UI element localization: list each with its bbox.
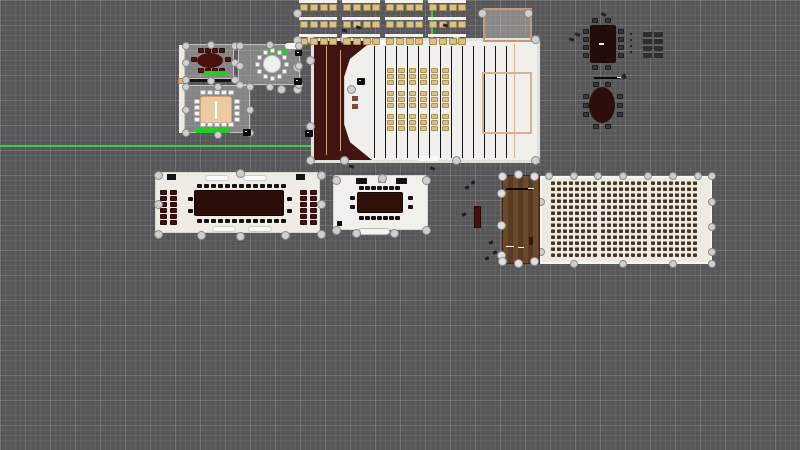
chair[interactable] bbox=[310, 220, 317, 225]
selection-handle[interactable] bbox=[694, 172, 702, 180]
chair[interactable] bbox=[207, 90, 213, 95]
chair[interactable] bbox=[675, 181, 679, 185]
chair[interactable] bbox=[587, 187, 591, 191]
chair[interactable] bbox=[398, 103, 405, 108]
chair[interactable] bbox=[458, 21, 466, 28]
chair[interactable] bbox=[601, 199, 605, 203]
chair[interactable] bbox=[170, 196, 177, 201]
chair[interactable] bbox=[188, 197, 193, 201]
chair[interactable] bbox=[569, 187, 573, 191]
chair[interactable] bbox=[593, 241, 597, 245]
chair[interactable] bbox=[569, 241, 573, 245]
chair[interactable] bbox=[281, 184, 286, 188]
chair[interactable] bbox=[557, 247, 561, 251]
selection-handle[interactable] bbox=[514, 259, 523, 268]
chair[interactable] bbox=[569, 247, 573, 251]
chair[interactable] bbox=[693, 181, 697, 185]
chair[interactable] bbox=[613, 253, 617, 257]
chair[interactable] bbox=[651, 199, 655, 203]
credenza[interactable] bbox=[248, 226, 272, 232]
chair[interactable] bbox=[593, 193, 597, 197]
chair[interactable] bbox=[343, 4, 351, 11]
chair[interactable] bbox=[651, 187, 655, 191]
chair[interactable] bbox=[663, 199, 667, 203]
chair[interactable] bbox=[601, 235, 605, 239]
selection-handle[interactable] bbox=[317, 200, 326, 209]
chair[interactable] bbox=[637, 241, 641, 245]
chair[interactable] bbox=[170, 220, 177, 225]
chair[interactable] bbox=[429, 4, 437, 11]
chair[interactable] bbox=[442, 91, 449, 96]
chair[interactable] bbox=[625, 247, 629, 251]
chair[interactable] bbox=[232, 219, 237, 223]
chair[interactable] bbox=[654, 45, 663, 51]
chair[interactable] bbox=[409, 126, 416, 131]
chair[interactable] bbox=[693, 235, 697, 239]
chair[interactable] bbox=[605, 18, 611, 23]
chair[interactable] bbox=[643, 181, 647, 185]
selection-handle[interactable] bbox=[236, 42, 244, 50]
chair[interactable] bbox=[675, 247, 679, 251]
chair[interactable] bbox=[287, 197, 292, 201]
selection-handle[interactable] bbox=[708, 223, 716, 231]
chair[interactable] bbox=[593, 181, 597, 185]
chair[interactable] bbox=[625, 235, 629, 239]
chair[interactable] bbox=[643, 205, 647, 209]
chair[interactable] bbox=[693, 205, 697, 209]
chair[interactable] bbox=[263, 50, 268, 55]
chair[interactable] bbox=[687, 247, 691, 251]
chair[interactable] bbox=[365, 216, 370, 220]
chair[interactable] bbox=[409, 68, 416, 73]
chair[interactable] bbox=[420, 91, 427, 96]
chair[interactable] bbox=[246, 219, 251, 223]
chair[interactable] bbox=[329, 38, 337, 45]
credenza[interactable] bbox=[243, 175, 267, 181]
selection-handle[interactable] bbox=[182, 106, 190, 114]
selection-handle[interactable] bbox=[266, 83, 274, 91]
chair[interactable] bbox=[631, 223, 635, 227]
chair[interactable] bbox=[431, 103, 438, 108]
chair[interactable] bbox=[687, 229, 691, 233]
chair[interactable] bbox=[625, 253, 629, 257]
chair[interactable] bbox=[583, 103, 589, 108]
chair[interactable] bbox=[625, 205, 629, 209]
chair[interactable] bbox=[429, 21, 437, 28]
selection-handle[interactable] bbox=[478, 9, 487, 18]
chair[interactable] bbox=[191, 57, 197, 62]
chair[interactable] bbox=[693, 229, 697, 233]
selection-handle[interactable] bbox=[332, 226, 341, 235]
chair[interactable] bbox=[372, 4, 380, 11]
chair[interactable] bbox=[204, 219, 209, 223]
chair[interactable] bbox=[613, 211, 617, 215]
chair[interactable] bbox=[281, 219, 286, 223]
chair[interactable] bbox=[575, 217, 579, 221]
chair[interactable] bbox=[415, 4, 423, 11]
selection-handle[interactable] bbox=[154, 200, 163, 209]
chair[interactable] bbox=[687, 223, 691, 227]
chair[interactable] bbox=[257, 69, 262, 74]
chair[interactable] bbox=[669, 187, 673, 191]
chair[interactable] bbox=[551, 241, 555, 245]
chair[interactable] bbox=[575, 187, 579, 191]
chair[interactable] bbox=[551, 217, 555, 221]
chair[interactable] bbox=[625, 229, 629, 233]
chair[interactable] bbox=[551, 253, 555, 257]
chair[interactable] bbox=[320, 38, 328, 45]
chair[interactable] bbox=[569, 235, 573, 239]
chair[interactable] bbox=[637, 247, 641, 251]
chair[interactable] bbox=[651, 217, 655, 221]
chair[interactable] bbox=[631, 199, 635, 203]
chair[interactable] bbox=[234, 117, 240, 122]
chair[interactable] bbox=[569, 181, 573, 185]
chair[interactable] bbox=[681, 229, 685, 233]
chair[interactable] bbox=[310, 38, 318, 45]
selection-handle[interactable] bbox=[498, 172, 507, 181]
chair[interactable] bbox=[675, 187, 679, 191]
chair[interactable] bbox=[607, 229, 611, 233]
chair[interactable] bbox=[221, 90, 227, 95]
chair[interactable] bbox=[593, 124, 599, 129]
chair[interactable] bbox=[681, 187, 685, 191]
chair[interactable] bbox=[557, 181, 561, 185]
chair[interactable] bbox=[575, 205, 579, 209]
chair[interactable] bbox=[657, 223, 661, 227]
chair[interactable] bbox=[687, 187, 691, 191]
chair[interactable] bbox=[651, 181, 655, 185]
desk[interactable] bbox=[299, 17, 337, 20]
chair[interactable] bbox=[593, 247, 597, 251]
chair[interactable] bbox=[657, 253, 661, 257]
chair[interactable] bbox=[687, 199, 691, 203]
chair[interactable] bbox=[637, 193, 641, 197]
chair[interactable] bbox=[581, 181, 585, 185]
desk[interactable] bbox=[428, 17, 466, 20]
chair[interactable] bbox=[643, 187, 647, 191]
chair[interactable] bbox=[170, 208, 177, 213]
chair[interactable] bbox=[228, 122, 234, 127]
chair[interactable] bbox=[442, 120, 449, 125]
chair[interactable] bbox=[592, 18, 598, 23]
chair[interactable] bbox=[449, 38, 457, 45]
chair[interactable] bbox=[669, 181, 673, 185]
chair[interactable] bbox=[188, 209, 193, 213]
chair[interactable] bbox=[350, 196, 355, 200]
chair[interactable] bbox=[160, 208, 167, 213]
chair[interactable] bbox=[575, 193, 579, 197]
chair[interactable] bbox=[643, 235, 647, 239]
chair[interactable] bbox=[377, 216, 382, 220]
chair[interactable] bbox=[398, 120, 405, 125]
chair[interactable] bbox=[386, 38, 394, 45]
chair[interactable] bbox=[575, 253, 579, 257]
chair[interactable] bbox=[693, 247, 697, 251]
chair[interactable] bbox=[637, 217, 641, 221]
chair[interactable] bbox=[398, 114, 405, 119]
chair[interactable] bbox=[619, 205, 623, 209]
chair[interactable] bbox=[563, 217, 567, 221]
chair[interactable] bbox=[557, 223, 561, 227]
chair[interactable] bbox=[601, 253, 605, 257]
chair[interactable] bbox=[442, 114, 449, 119]
chair[interactable] bbox=[228, 90, 234, 95]
chair[interactable] bbox=[557, 187, 561, 191]
chair[interactable] bbox=[619, 217, 623, 221]
chair[interactable] bbox=[625, 211, 629, 215]
chair[interactable] bbox=[631, 229, 635, 233]
desk[interactable] bbox=[342, 17, 380, 20]
chair[interactable] bbox=[607, 181, 611, 185]
chair[interactable] bbox=[274, 184, 279, 188]
chair[interactable] bbox=[406, 4, 414, 11]
chair[interactable] bbox=[625, 223, 629, 227]
chair[interactable] bbox=[563, 205, 567, 209]
selection-handle[interactable] bbox=[281, 231, 290, 240]
selection-handle[interactable] bbox=[498, 257, 507, 266]
chair[interactable] bbox=[631, 217, 635, 221]
chair[interactable] bbox=[631, 235, 635, 239]
chair[interactable] bbox=[587, 193, 591, 197]
chair[interactable] bbox=[310, 21, 318, 28]
chair[interactable] bbox=[569, 229, 573, 233]
selection-handle[interactable] bbox=[154, 171, 163, 180]
chair[interactable] bbox=[675, 253, 679, 257]
chair[interactable] bbox=[631, 181, 635, 185]
chair[interactable] bbox=[406, 21, 414, 28]
chair[interactable] bbox=[651, 247, 655, 251]
chair[interactable] bbox=[170, 190, 177, 195]
selection-handle[interactable] bbox=[277, 85, 286, 94]
selection-handle[interactable] bbox=[390, 229, 399, 238]
selection-handle[interactable] bbox=[182, 59, 190, 67]
chair[interactable] bbox=[569, 205, 573, 209]
selection-handle[interactable] bbox=[352, 229, 361, 238]
chair[interactable] bbox=[439, 4, 447, 11]
selection-handle[interactable] bbox=[531, 156, 540, 165]
chair[interactable] bbox=[429, 38, 437, 45]
selection-handle[interactable] bbox=[236, 62, 244, 70]
selection-handle[interactable] bbox=[182, 83, 190, 91]
chair[interactable] bbox=[593, 253, 597, 257]
chair[interactable] bbox=[575, 181, 579, 185]
chair[interactable] bbox=[581, 187, 585, 191]
chair[interactable] bbox=[663, 253, 667, 257]
chair[interactable] bbox=[581, 223, 585, 227]
chair[interactable] bbox=[619, 229, 623, 233]
chair[interactable] bbox=[160, 214, 167, 219]
chair[interactable] bbox=[613, 181, 617, 185]
chair[interactable] bbox=[583, 29, 589, 34]
chair[interactable] bbox=[681, 211, 685, 215]
selection-handle[interactable] bbox=[340, 156, 349, 165]
chair[interactable] bbox=[613, 229, 617, 233]
chair[interactable] bbox=[663, 235, 667, 239]
chair[interactable] bbox=[637, 229, 641, 233]
chair[interactable] bbox=[687, 241, 691, 245]
chair[interactable] bbox=[669, 253, 673, 257]
chair[interactable] bbox=[681, 223, 685, 227]
chair[interactable] bbox=[575, 211, 579, 215]
chair[interactable] bbox=[657, 235, 661, 239]
chair[interactable] bbox=[387, 126, 394, 131]
chair[interactable] bbox=[320, 21, 328, 28]
chair[interactable] bbox=[663, 187, 667, 191]
chair[interactable] bbox=[310, 196, 317, 201]
chair[interactable] bbox=[687, 253, 691, 257]
desk[interactable] bbox=[428, 34, 466, 37]
chair[interactable] bbox=[442, 103, 449, 108]
chair[interactable] bbox=[194, 105, 200, 110]
chair[interactable] bbox=[246, 184, 251, 188]
chair[interactable] bbox=[619, 193, 623, 197]
chair[interactable] bbox=[619, 235, 623, 239]
chair[interactable] bbox=[200, 90, 206, 95]
chair[interactable] bbox=[398, 91, 405, 96]
chair[interactable] bbox=[613, 199, 617, 203]
chair[interactable] bbox=[587, 253, 591, 257]
selection-handle[interactable] bbox=[422, 226, 431, 235]
chair[interactable] bbox=[601, 181, 605, 185]
chair[interactable] bbox=[551, 223, 555, 227]
chair[interactable] bbox=[563, 187, 567, 191]
chair[interactable] bbox=[593, 82, 599, 87]
chair[interactable] bbox=[637, 181, 641, 185]
chair[interactable] bbox=[409, 103, 416, 108]
selection-handle[interactable] bbox=[246, 83, 254, 91]
chair[interactable] bbox=[274, 219, 279, 223]
chair[interactable] bbox=[234, 111, 240, 116]
conference-table[interactable] bbox=[194, 190, 284, 216]
conference-table[interactable] bbox=[357, 192, 403, 213]
selection-handle[interactable] bbox=[531, 35, 540, 44]
chair[interactable] bbox=[282, 55, 287, 60]
chair[interactable] bbox=[619, 187, 623, 191]
chair[interactable] bbox=[643, 211, 647, 215]
chair[interactable] bbox=[267, 184, 272, 188]
chair[interactable] bbox=[657, 229, 661, 233]
chair[interactable] bbox=[669, 229, 673, 233]
selection-handle[interactable] bbox=[530, 257, 539, 266]
chair[interactable] bbox=[587, 223, 591, 227]
chair[interactable] bbox=[431, 91, 438, 96]
chair[interactable] bbox=[581, 241, 585, 245]
selection-handle[interactable] bbox=[347, 85, 356, 94]
chair[interactable] bbox=[613, 223, 617, 227]
chair[interactable] bbox=[569, 193, 573, 197]
selection-handle[interactable] bbox=[306, 56, 315, 65]
chair[interactable] bbox=[613, 193, 617, 197]
chair[interactable] bbox=[657, 247, 661, 251]
chair[interactable] bbox=[593, 211, 597, 215]
chair[interactable] bbox=[431, 126, 438, 131]
chair[interactable] bbox=[657, 199, 661, 203]
table-top[interactable] bbox=[197, 53, 223, 68]
chair[interactable] bbox=[663, 181, 667, 185]
chair[interactable] bbox=[310, 202, 317, 207]
chair[interactable] bbox=[643, 193, 647, 197]
desk[interactable] bbox=[385, 17, 423, 20]
chair[interactable] bbox=[282, 69, 287, 74]
chair[interactable] bbox=[587, 181, 591, 185]
chair[interactable] bbox=[225, 184, 230, 188]
chair[interactable] bbox=[386, 21, 394, 28]
chair[interactable] bbox=[557, 241, 561, 245]
chair[interactable] bbox=[631, 211, 635, 215]
design-canvas[interactable] bbox=[0, 0, 800, 450]
chair[interactable] bbox=[619, 241, 623, 245]
chair[interactable] bbox=[408, 196, 413, 200]
chair[interactable] bbox=[675, 199, 679, 203]
selection-handle[interactable] bbox=[530, 172, 539, 181]
chair[interactable] bbox=[631, 253, 635, 257]
selection-handle[interactable] bbox=[452, 156, 461, 165]
chair[interactable] bbox=[160, 220, 167, 225]
chair[interactable] bbox=[383, 216, 388, 220]
chair[interactable] bbox=[320, 4, 328, 11]
chair[interactable] bbox=[625, 199, 629, 203]
chair[interactable] bbox=[406, 38, 414, 45]
chair[interactable] bbox=[194, 111, 200, 116]
chair[interactable] bbox=[631, 187, 635, 191]
chair[interactable] bbox=[607, 253, 611, 257]
chair[interactable] bbox=[409, 97, 416, 102]
chair[interactable] bbox=[563, 211, 567, 215]
chair[interactable] bbox=[663, 193, 667, 197]
chair[interactable] bbox=[651, 211, 655, 215]
selection-handle[interactable] bbox=[708, 198, 716, 206]
chair[interactable] bbox=[643, 223, 647, 227]
selection-handle[interactable] bbox=[570, 260, 578, 268]
chair[interactable] bbox=[353, 4, 361, 11]
selection-handle[interactable] bbox=[669, 260, 677, 268]
chair[interactable] bbox=[663, 223, 667, 227]
chair[interactable] bbox=[651, 253, 655, 257]
chair[interactable] bbox=[386, 4, 394, 11]
chair[interactable] bbox=[569, 211, 573, 215]
chair[interactable] bbox=[601, 193, 605, 197]
chair[interactable] bbox=[675, 229, 679, 233]
chair[interactable] bbox=[607, 199, 611, 203]
chair[interactable] bbox=[619, 223, 623, 227]
chair[interactable] bbox=[389, 216, 394, 220]
selection-handle[interactable] bbox=[197, 231, 206, 240]
chair[interactable] bbox=[625, 181, 629, 185]
selection-handle[interactable] bbox=[182, 42, 190, 50]
chair[interactable] bbox=[395, 186, 400, 190]
chair[interactable] bbox=[239, 184, 244, 188]
chair[interactable] bbox=[257, 55, 262, 60]
chair[interactable] bbox=[693, 253, 697, 257]
chair[interactable] bbox=[619, 199, 623, 203]
chair[interactable] bbox=[442, 97, 449, 102]
chair[interactable] bbox=[601, 217, 605, 221]
selection-handle[interactable] bbox=[497, 221, 506, 230]
chair[interactable] bbox=[557, 217, 561, 221]
chair[interactable] bbox=[651, 229, 655, 233]
selection-handle[interactable] bbox=[644, 172, 652, 180]
selection-handle[interactable] bbox=[708, 172, 716, 180]
chair[interactable] bbox=[587, 199, 591, 203]
chair[interactable] bbox=[643, 247, 647, 251]
chair[interactable] bbox=[263, 74, 268, 79]
chair[interactable] bbox=[170, 202, 177, 207]
speaker-box[interactable] bbox=[295, 50, 302, 56]
chair[interactable] bbox=[663, 217, 667, 221]
chair[interactable] bbox=[398, 126, 405, 131]
chair[interactable] bbox=[221, 122, 227, 127]
